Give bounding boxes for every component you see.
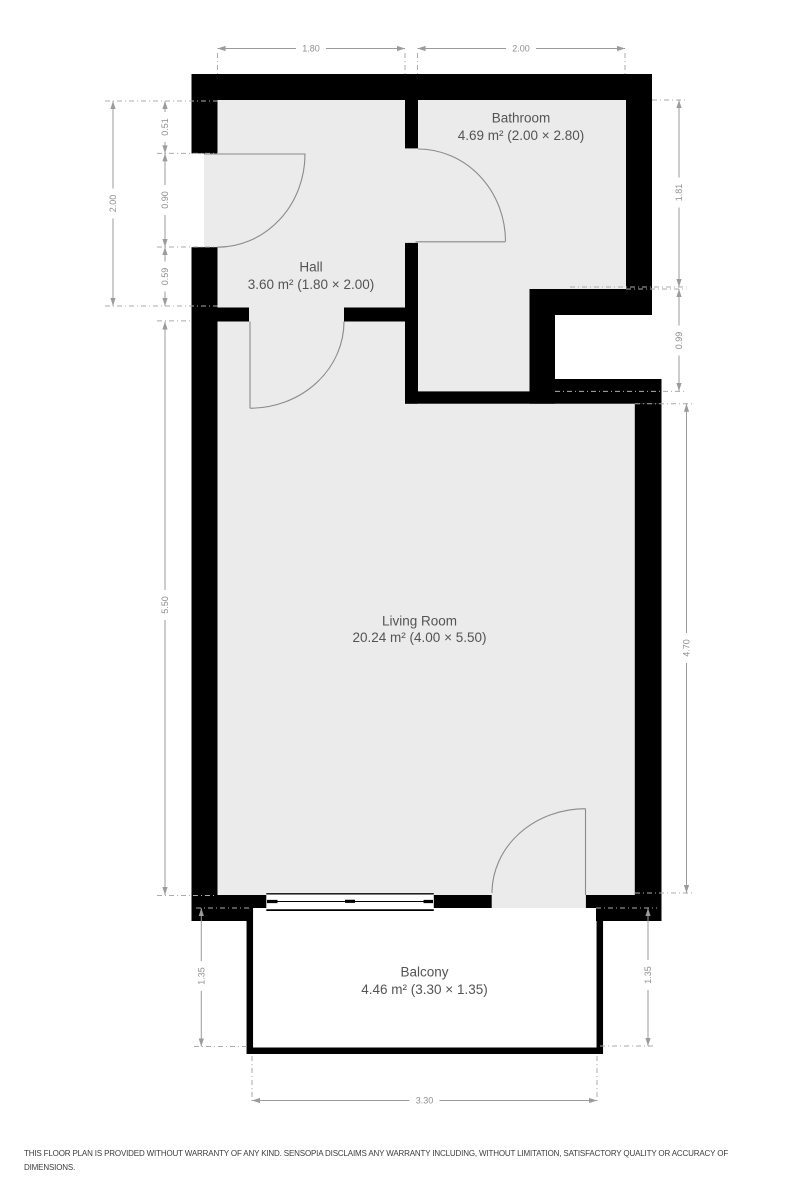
svg-text:4.46 m² (3.30 × 1.35): 4.46 m² (3.30 × 1.35) (361, 982, 487, 997)
svg-text:0.59: 0.59 (160, 268, 170, 286)
svg-text:1.35: 1.35 (643, 966, 653, 984)
svg-text:0.51: 0.51 (160, 118, 170, 136)
svg-text:Hall: Hall (299, 260, 322, 275)
svg-text:Balcony: Balcony (400, 965, 448, 980)
svg-text:2.00: 2.00 (108, 195, 118, 213)
svg-text:4.69 m² (2.00 × 2.80): 4.69 m² (2.00 × 2.80) (458, 128, 584, 143)
svg-text:5.50: 5.50 (160, 596, 170, 614)
svg-text:0.90: 0.90 (160, 191, 170, 209)
svg-text:Living Room: Living Room (382, 614, 457, 629)
svg-text:20.24 m² (4.00 × 5.50): 20.24 m² (4.00 × 5.50) (353, 630, 487, 645)
svg-text:3.60 m² (1.80 × 2.00): 3.60 m² (1.80 × 2.00) (248, 277, 374, 292)
svg-text:3.30: 3.30 (416, 1096, 434, 1106)
svg-text:Bathroom: Bathroom (492, 111, 551, 126)
svg-text:2.00: 2.00 (512, 44, 530, 54)
svg-text:1.80: 1.80 (302, 44, 320, 54)
svg-text:0.99: 0.99 (674, 332, 684, 350)
svg-text:4.70: 4.70 (682, 639, 692, 657)
svg-text:1.81: 1.81 (674, 184, 684, 202)
svg-text:1.35: 1.35 (196, 967, 206, 985)
